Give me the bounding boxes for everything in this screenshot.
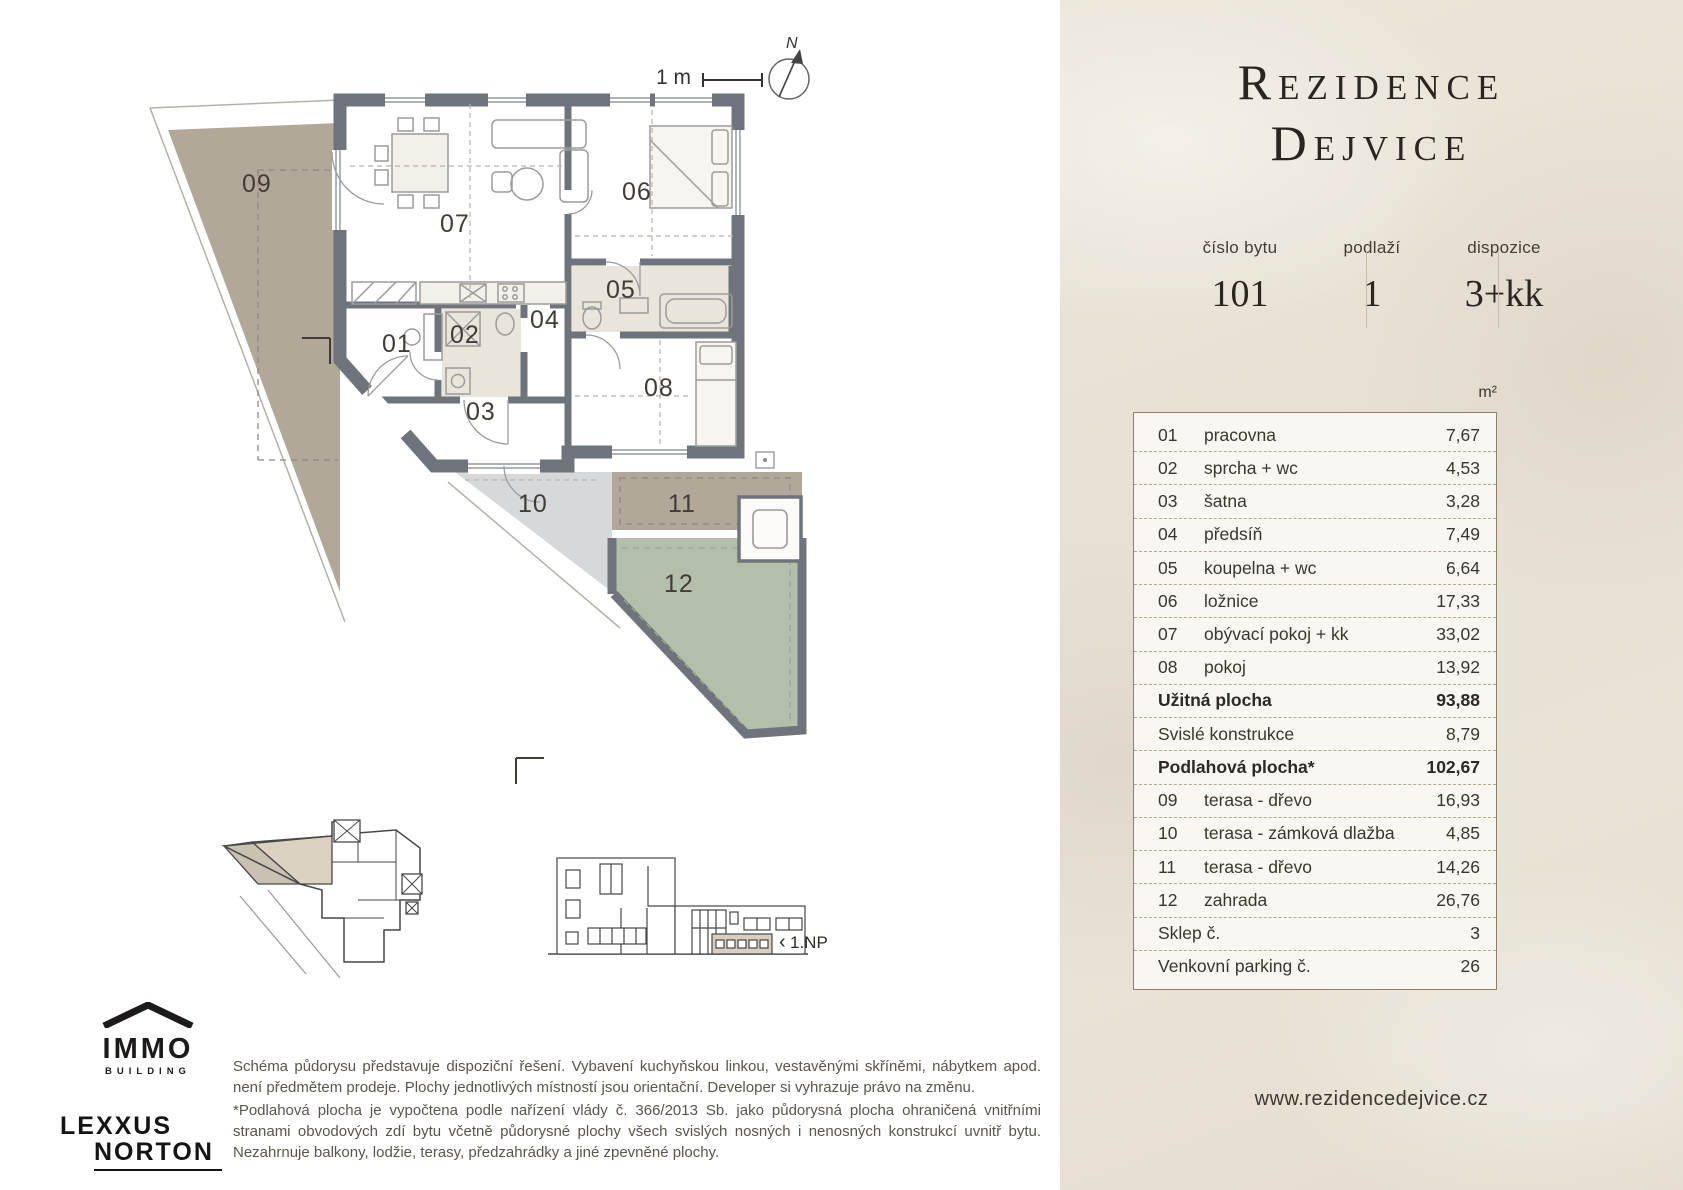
outdoor-tap: [756, 452, 774, 468]
info-divider-2: [1498, 252, 1499, 328]
table-row: 10terasa - zámková dlažba4,85: [1134, 818, 1496, 851]
row-number: 04: [1158, 524, 1204, 545]
room-label-02: 02: [450, 321, 480, 349]
room-label-05: 05: [606, 276, 636, 304]
page: 1 m N 09 07 06 05 04 02 01 03 08 10 11 1…: [0, 0, 1683, 1190]
row-name: sprcha + wc: [1204, 458, 1446, 479]
roof-icon: [100, 1002, 196, 1028]
row-value: 7,67: [1446, 425, 1480, 446]
row-value: 8,79: [1446, 724, 1480, 745]
scale-bar: 1 m: [656, 66, 762, 89]
lexxus-logo-line1: LEXXUS: [60, 1114, 222, 1139]
floor-indicator-label: 1.NP: [790, 933, 828, 952]
row-number: 09: [1158, 790, 1204, 811]
row-name: Podlahová plocha*: [1158, 757, 1426, 778]
table-row: Sklep č.3: [1134, 918, 1496, 951]
table-row: 12zahrada26,76: [1134, 884, 1496, 917]
row-number: 12: [1158, 890, 1204, 911]
row-name: terasa - zámková dlažba: [1204, 823, 1446, 844]
row-value: 6,64: [1446, 558, 1480, 579]
row-value: 4,85: [1446, 823, 1480, 844]
room-label-01: 01: [382, 330, 412, 358]
project-title-line1: Rezidence: [1060, 52, 1683, 113]
floor-cell: podlaží 1: [1306, 238, 1438, 316]
row-number: 05: [1158, 558, 1204, 579]
info-panel: Rezidence Dejvice číslo bytu 101 podlaží…: [1060, 0, 1683, 1190]
row-number: 01: [1158, 425, 1204, 446]
row-number: 07: [1158, 624, 1204, 645]
table-row: Podlahová plocha*102,67: [1134, 751, 1496, 784]
row-name: terasa - dřevo: [1204, 790, 1436, 811]
immo-building-logo: IMMO BUILDING: [88, 1002, 208, 1077]
apartment-info-row: číslo bytu 101 podlaží 1 dispozice 3+kk: [1174, 238, 1570, 316]
table-row: Venkovní parking č.26: [1134, 951, 1496, 983]
apartment-number-cell: číslo bytu 101: [1174, 238, 1306, 316]
area-table: 01pracovna7,6702sprcha + wc4,5303šatna3,…: [1133, 412, 1497, 990]
table-row: 09terasa - dřevo16,93: [1134, 785, 1496, 818]
row-name: obývací pokoj + kk: [1204, 624, 1436, 645]
room-label-10: 10: [518, 490, 548, 518]
row-value: 17,33: [1436, 591, 1480, 612]
unit-header: m²: [1133, 384, 1497, 402]
table-row: 04předsíň7,49: [1134, 519, 1496, 552]
row-value: 3: [1470, 923, 1480, 944]
row-name: šatna: [1204, 491, 1446, 512]
row-value: 26: [1461, 956, 1480, 977]
row-name: zahrada: [1204, 890, 1436, 911]
lexxus-logo-line2: NORTON: [94, 1140, 222, 1165]
row-name: Svislé konstrukce: [1158, 724, 1446, 745]
row-value: 26,76: [1436, 890, 1480, 911]
row-number: 11: [1158, 857, 1204, 878]
floor-arrow-icon: ‹: [779, 931, 786, 953]
row-value: 4,53: [1446, 458, 1480, 479]
lexxus-norton-logo: LEXXUS NORTON: [60, 1114, 222, 1171]
row-value: 3,28: [1446, 491, 1480, 512]
row-name: pokoj: [1204, 657, 1436, 678]
project-title: Rezidence Dejvice: [1060, 52, 1683, 174]
row-name: Sklep č.: [1158, 923, 1470, 944]
website-url[interactable]: www.rezidencedejvice.cz: [1060, 1088, 1683, 1111]
lexxus-logo-rule: [94, 1169, 222, 1171]
table-row: 11terasa - dřevo14,26: [1134, 851, 1496, 884]
row-number: 06: [1158, 591, 1204, 612]
room-label-12: 12: [664, 570, 694, 598]
row-name: předsíň: [1204, 524, 1446, 545]
row-name: terasa - dřevo: [1204, 857, 1436, 878]
project-title-line2: Dejvice: [1060, 113, 1683, 174]
layout-label: dispozice: [1438, 238, 1570, 258]
row-name: koupelna + wc: [1204, 558, 1446, 579]
row-value: 7,49: [1446, 524, 1480, 545]
scale-label: 1 m: [656, 66, 691, 89]
room-label-11: 11: [668, 490, 696, 518]
table-row: Užitná plocha93,88: [1134, 685, 1496, 718]
row-number: 03: [1158, 491, 1204, 512]
row-name: pracovna: [1204, 425, 1446, 446]
row-name: Venkovní parking č.: [1158, 956, 1461, 977]
row-name: ložnice: [1204, 591, 1436, 612]
table-row: 08pokoj13,92: [1134, 652, 1496, 685]
building-elevation: [548, 858, 808, 954]
room-label-09: 09: [242, 170, 272, 198]
room-label-06: 06: [622, 178, 652, 206]
row-value: 14,26: [1436, 857, 1480, 878]
mini-site-plan: [224, 820, 422, 978]
table-row: Svislé konstrukce8,79: [1134, 718, 1496, 751]
row-number: 10: [1158, 823, 1204, 844]
garden-12-area: [612, 538, 802, 734]
layout-value: 3+kk: [1438, 272, 1570, 316]
room-label-07: 07: [440, 210, 470, 238]
info-divider-1: [1366, 252, 1367, 328]
table-row: 06ložnice17,33: [1134, 585, 1496, 618]
immo-logo-subtext: BUILDING: [88, 1066, 208, 1077]
north-label: N: [786, 35, 798, 52]
row-value: 93,88: [1436, 690, 1480, 711]
disclaimer-paragraph-1: Schéma půdorysu představuje dispoziční ř…: [233, 1056, 1041, 1099]
apartment-number-label: číslo bytu: [1174, 238, 1306, 258]
row-name: Užitná plocha: [1158, 690, 1436, 711]
table-row: 03šatna3,28: [1134, 485, 1496, 518]
row-number: 02: [1158, 458, 1204, 479]
row-value: 102,67: [1426, 757, 1480, 778]
room-label-08: 08: [644, 374, 674, 402]
garden-storage: [739, 497, 801, 561]
room-label-04: 04: [530, 306, 560, 334]
floor-label: podlaží: [1306, 238, 1438, 258]
floor-value: 1: [1306, 272, 1438, 316]
table-row: 02sprcha + wc4,53: [1134, 452, 1496, 485]
immo-logo-text: IMMO: [88, 1035, 208, 1064]
table-row: 05koupelna + wc6,64: [1134, 552, 1496, 585]
row-value: 33,02: [1436, 624, 1480, 645]
north-compass: N: [769, 35, 809, 99]
room-label-03: 03: [466, 398, 496, 426]
apartment-number-value: 101: [1174, 272, 1306, 316]
table-row: 01pracovna7,67: [1134, 419, 1496, 452]
disclaimer-paragraph-2: *Podlahová plocha je vypočtena podle nař…: [233, 1100, 1041, 1164]
table-row: 07obývací pokoj + kk33,02: [1134, 618, 1496, 651]
row-number: 08: [1158, 657, 1204, 678]
layout-cell: dispozice 3+kk: [1438, 238, 1570, 316]
row-value: 13,92: [1436, 657, 1480, 678]
row-value: 16,93: [1436, 790, 1480, 811]
disclaimer: Schéma půdorysu představuje dispoziční ř…: [233, 1056, 1041, 1163]
